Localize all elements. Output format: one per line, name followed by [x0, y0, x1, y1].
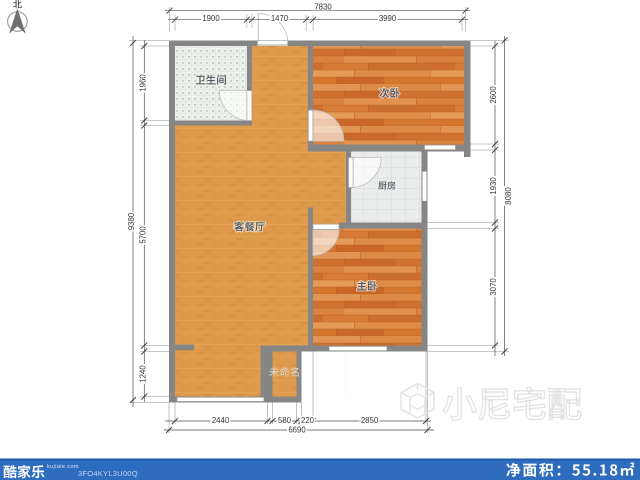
- svg-text:2440: 2440: [212, 416, 230, 425]
- svg-text:9380: 9380: [127, 212, 136, 230]
- svg-text:1240: 1240: [138, 365, 147, 383]
- svg-text:1930: 1930: [489, 177, 498, 195]
- svg-text:2850: 2850: [361, 416, 379, 425]
- svg-text:1960: 1960: [138, 74, 147, 92]
- svg-text:8080: 8080: [504, 187, 513, 205]
- svg-text:580: 580: [278, 416, 292, 425]
- svg-text:1900: 1900: [202, 14, 220, 23]
- svg-text:kujiale.com: kujiale.com: [47, 464, 79, 470]
- svg-text:3990: 3990: [379, 14, 397, 23]
- svg-text:1470: 1470: [271, 14, 289, 23]
- svg-text:7830: 7830: [314, 2, 332, 11]
- svg-text:2600: 2600: [489, 86, 498, 104]
- svg-text:3FO4KYL3U00Q: 3FO4KYL3U00Q: [78, 469, 138, 478]
- svg-text:220: 220: [301, 416, 315, 425]
- svg-text:3070: 3070: [489, 278, 498, 296]
- svg-text:6690: 6690: [288, 425, 306, 434]
- svg-text:5700: 5700: [138, 226, 147, 244]
